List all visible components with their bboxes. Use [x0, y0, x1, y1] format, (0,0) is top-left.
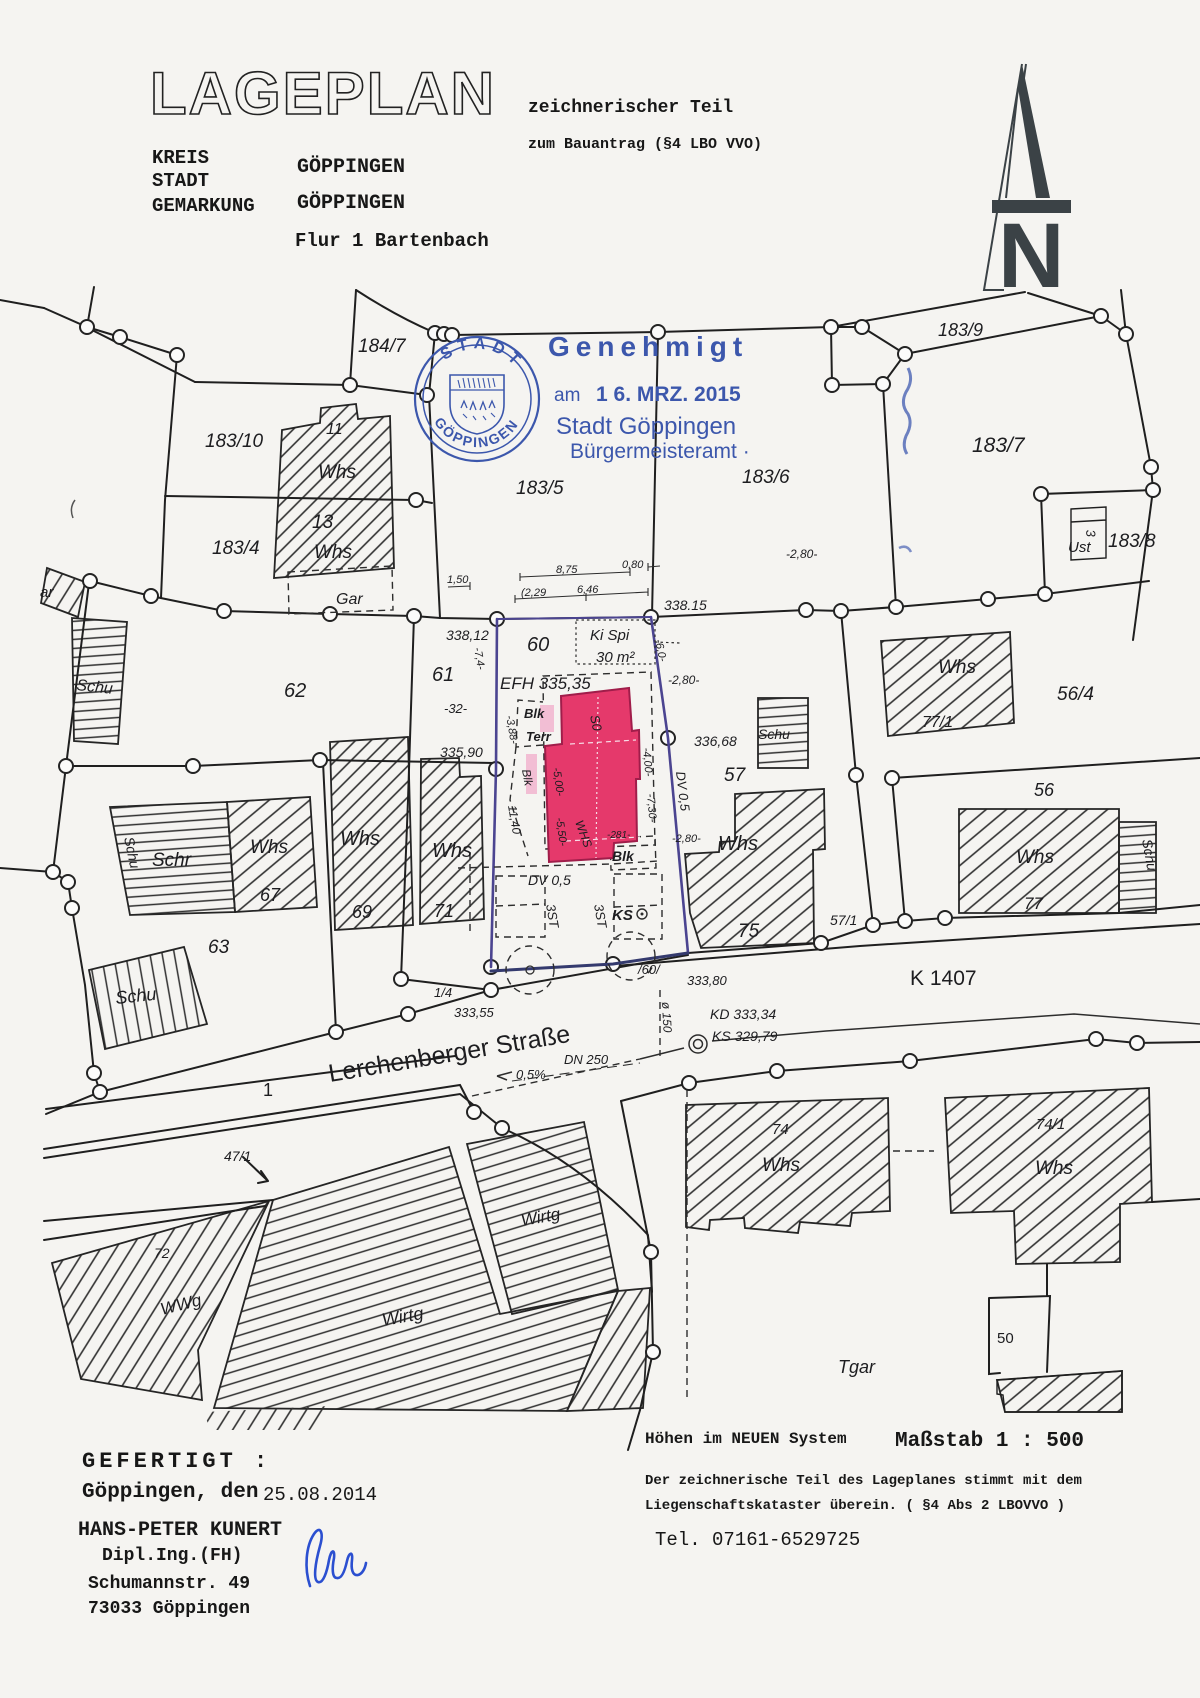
- svg-text:63: 63: [208, 937, 230, 958]
- svg-text:Whs: Whs: [938, 657, 977, 678]
- svg-text:-4,00-: -4,00-: [640, 747, 654, 777]
- svg-text:75: 75: [738, 921, 760, 942]
- svg-text:74: 74: [772, 1121, 789, 1138]
- svg-text:LAGEPLAN: LAGEPLAN: [150, 60, 496, 127]
- svg-text:1 6. MRZ. 2015: 1 6. MRZ. 2015: [596, 383, 741, 406]
- svg-text:Whs: Whs: [432, 840, 472, 862]
- svg-text:Bürgermeisteramt ·: Bürgermeisteramt ·: [570, 440, 750, 463]
- svg-text:Höhen im NEUEN System: Höhen im NEUEN System: [645, 1430, 847, 1448]
- svg-text:Stadt Göppingen: Stadt Göppingen: [556, 413, 736, 440]
- svg-text:333,80: 333,80: [687, 973, 728, 988]
- svg-text:Genehmigt: Genehmigt: [548, 331, 748, 362]
- svg-text:-7,30-: -7,30-: [644, 793, 658, 823]
- svg-text:Whs: Whs: [250, 837, 289, 858]
- svg-text:1: 1: [263, 1080, 273, 1100]
- svg-text:GEMARKUNG: GEMARKUNG: [152, 195, 255, 217]
- svg-text:0,80: 0,80: [622, 559, 644, 571]
- svg-text:183/6: 183/6: [742, 467, 790, 488]
- svg-text:57: 57: [724, 765, 747, 786]
- svg-text:GÖPPINGEN: GÖPPINGEN: [297, 191, 405, 215]
- svg-text:Blk: Blk: [524, 706, 545, 721]
- svg-text:Whs: Whs: [340, 828, 380, 850]
- svg-text:183/9: 183/9: [938, 320, 983, 340]
- svg-text:Whs: Whs: [314, 542, 353, 563]
- svg-text:184/7: 184/7: [358, 336, 407, 357]
- svg-text:Whs: Whs: [762, 1155, 801, 1176]
- svg-text:77: 77: [1024, 894, 1043, 913]
- svg-text:ar: ar: [40, 584, 54, 601]
- svg-text:183/7: 183/7: [972, 434, 1026, 457]
- svg-text:DN 250: DN 250: [564, 1052, 609, 1067]
- svg-text:zeichnerischer Teil: zeichnerischer Teil: [528, 98, 733, 118]
- svg-text:-2,80-: -2,80-: [668, 673, 699, 687]
- svg-text:Blk: Blk: [612, 848, 635, 864]
- svg-text:Schu: Schu: [758, 726, 790, 742]
- svg-text:Terr: Terr: [526, 729, 552, 744]
- svg-text:-32-: -32-: [444, 701, 468, 716]
- svg-text:338,12: 338,12: [446, 627, 489, 643]
- svg-text:Whs: Whs: [1035, 1158, 1074, 1179]
- svg-text:336,68: 336,68: [694, 733, 737, 749]
- svg-text:13: 13: [312, 512, 334, 533]
- svg-text:61: 61: [432, 664, 454, 686]
- svg-text:57/1: 57/1: [830, 912, 857, 928]
- svg-text:50: 50: [997, 1330, 1014, 1347]
- svg-text:Dipl.Ing.(FH): Dipl.Ing.(FH): [102, 1546, 242, 1566]
- svg-text:25.08.2014: 25.08.2014: [263, 1484, 377, 1506]
- svg-text:/60/: /60/: [637, 962, 661, 977]
- svg-text:Liegenschaftskataster überein.: Liegenschaftskataster überein. ( §4 Abs …: [645, 1498, 1065, 1514]
- svg-text:Gar: Gar: [336, 591, 363, 608]
- svg-text:74/1: 74/1: [1036, 1116, 1065, 1133]
- svg-text:47/1: 47/1: [224, 1148, 251, 1164]
- svg-text:Flur 1 Bartenbach: Flur 1 Bartenbach: [295, 230, 489, 252]
- svg-text:K 1407: K 1407: [910, 967, 977, 990]
- svg-text:DV 0,5: DV 0,5: [528, 872, 571, 888]
- svg-text:Whs: Whs: [1016, 847, 1055, 868]
- svg-text:Der zeichnerische Teil des Lag: Der zeichnerische Teil des Lageplanes st…: [645, 1473, 1082, 1489]
- svg-text:HANS-PETER KUNERT: HANS-PETER KUNERT: [78, 1519, 282, 1542]
- svg-text:69: 69: [352, 902, 372, 922]
- svg-text:EFH 335,35: EFH 335,35: [500, 674, 591, 693]
- svg-text:183/4: 183/4: [212, 538, 260, 559]
- svg-text:KS: KS: [612, 907, 633, 924]
- svg-text:KS 329,79: KS 329,79: [712, 1028, 778, 1044]
- svg-text:67: 67: [260, 885, 281, 905]
- svg-text:GEFERTIGT :: GEFERTIGT :: [82, 1449, 271, 1474]
- svg-text:Whs: Whs: [718, 833, 758, 855]
- svg-text:71: 71: [434, 901, 454, 921]
- svg-text:77/1: 77/1: [922, 714, 953, 731]
- svg-text:Schumannstr. 49: Schumannstr. 49: [88, 1574, 250, 1594]
- svg-text:72: 72: [154, 1245, 170, 1261]
- svg-text:zum Bauantrag (§4 LBO VVO): zum Bauantrag (§4 LBO VVO): [528, 136, 762, 153]
- svg-text:Göppingen, den: Göppingen, den: [82, 1481, 258, 1504]
- svg-text:1/4: 1/4: [434, 985, 452, 1000]
- svg-text:am: am: [554, 385, 580, 406]
- svg-text:333,55: 333,55: [454, 1005, 495, 1020]
- svg-text:62: 62: [284, 680, 306, 702]
- svg-text:73033 Göppingen: 73033 Göppingen: [88, 1599, 250, 1619]
- svg-text:Schu: Schu: [114, 984, 157, 1008]
- svg-text:335,90: 335,90: [440, 744, 483, 760]
- svg-text:Ust: Ust: [1068, 539, 1091, 556]
- svg-text:STADT: STADT: [152, 170, 209, 192]
- svg-text:Tel. 07161-6529725: Tel. 07161-6529725: [655, 1529, 860, 1551]
- svg-text:338.15: 338.15: [664, 597, 707, 613]
- svg-text:183/8: 183/8: [1108, 531, 1156, 552]
- svg-text:11: 11: [326, 421, 343, 438]
- svg-text:56: 56: [1034, 780, 1055, 800]
- svg-text:Tgar: Tgar: [838, 1357, 876, 1377]
- svg-text:-2,80-: -2,80-: [786, 547, 817, 561]
- svg-text:60: 60: [527, 634, 549, 656]
- svg-text:1,50: 1,50: [447, 574, 469, 586]
- svg-text:183/5: 183/5: [516, 478, 564, 499]
- svg-text:-2,80-: -2,80-: [672, 833, 701, 845]
- svg-text:-281-: -281-: [607, 830, 631, 841]
- svg-text:56/4: 56/4: [1057, 684, 1094, 705]
- svg-text:ø 150: ø 150: [659, 1001, 675, 1033]
- svg-text:Schr: Schr: [152, 850, 192, 871]
- svg-text:30 m²: 30 m²: [596, 649, 635, 666]
- svg-text:183/10: 183/10: [205, 431, 264, 452]
- svg-text:Whs: Whs: [318, 462, 357, 483]
- svg-text:KD 333,34: KD 333,34: [710, 1006, 776, 1022]
- svg-text:GÖPPINGEN: GÖPPINGEN: [297, 155, 405, 179]
- svg-text:Ki Spi: Ki Spi: [590, 627, 630, 644]
- svg-text:KREIS: KREIS: [152, 147, 209, 169]
- svg-text:N: N: [998, 205, 1064, 307]
- svg-text:Maßstab 1 : 500: Maßstab 1 : 500: [895, 1430, 1084, 1453]
